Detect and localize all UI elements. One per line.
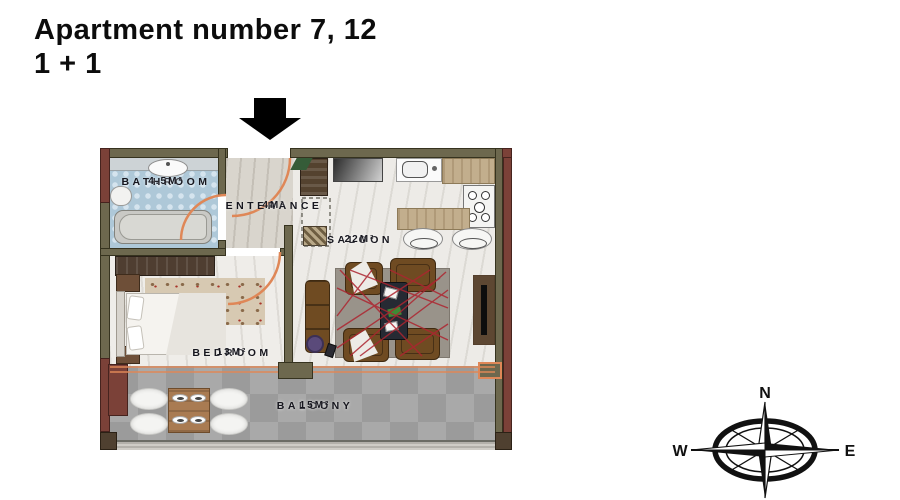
room-area: 13M²	[217, 347, 248, 359]
page: Apartment number 7, 12 1 + 1	[0, 0, 900, 500]
room-area: 15M²	[300, 400, 331, 412]
compass-rose-icon: N S W E	[668, 382, 862, 500]
compass-east-label: E	[845, 443, 856, 460]
title-line2: 1 + 1	[34, 48, 377, 82]
page-title: Apartment number 7, 12 1 + 1	[34, 14, 377, 81]
compass-west-label: W	[672, 443, 688, 460]
entrance-arrow-icon	[254, 98, 286, 119]
sliding-door-track	[110, 367, 495, 372]
room-area: 22M²	[345, 234, 376, 246]
room-area: 4M²	[262, 200, 285, 212]
floor-plan: BATHROOM 4.5M² ENTERANCE 4M² SALOON 22M²…	[100, 148, 512, 450]
title-line1: Apartment number 7, 12	[34, 14, 377, 48]
entrance-arrow-head	[239, 118, 301, 140]
room-area: 4.5M²	[148, 176, 184, 188]
rug-pattern	[337, 270, 448, 356]
compass-north-label: N	[759, 385, 771, 402]
